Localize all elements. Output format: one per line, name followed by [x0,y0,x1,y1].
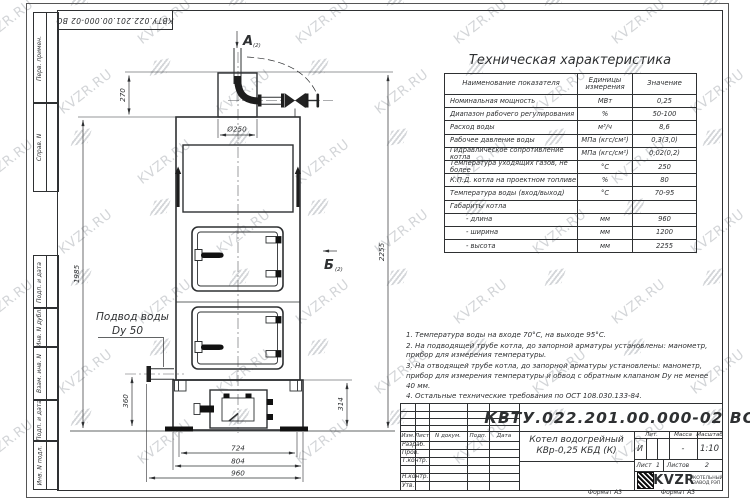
lower-fuel-door [192,307,283,369]
tech-row-value: 8,6 [633,121,697,134]
dim-360: 360 [121,394,130,408]
format-label: Формат А3 [575,489,635,496]
tech-col-header: Наименование показателя [445,74,578,95]
sheets-label: Листов [664,459,692,471]
centerlines [125,52,333,433]
tech-row-value: 0,25 [633,95,697,108]
leader-line [98,338,164,368]
dim-2255: 2255 [377,242,386,261]
note-line: 3. На отводящей трубе котла, до запорной… [406,361,714,390]
tb-line [401,465,519,466]
foot [165,427,193,432]
valve-handwheel [317,94,320,108]
margin-box-ref-number: Справ. N [33,102,59,192]
tech-row-unit [578,201,633,214]
dim-250: Ø250 [226,125,247,134]
tech-col-header: Единицы измерения [578,74,633,95]
tech-row-unit: м³/ч [578,121,633,134]
company-logo-icon [638,473,653,488]
sheet-label: Лист [635,459,653,471]
tech-col-header: Значение [633,74,697,95]
scale-header: Масштаб [697,431,722,438]
col-podp: Подп. [467,431,489,441]
dim-270: 270 [118,88,127,102]
tech-row-value: 250 [633,161,697,174]
product-name-line2: КВр-0,25 КБД (К) [536,446,616,457]
tech-row-name: - длина [445,214,578,227]
tech-row-value: 80 [633,174,697,187]
margin-box-inv-orig: Инв. N подл. [33,440,59,490]
tech-row-value: 0,02(0,2) [633,148,697,161]
tech-row-unit: МПа (кгс/см²) [578,135,633,148]
tech-row-value: 0,3(3,0) [633,135,697,148]
margin-box-first-use: Перв. примен. [33,12,59,104]
row-nkontr: Н.контр. [402,473,430,481]
view-b-label: Б [324,258,334,273]
flange [258,95,262,107]
door-handle-bracket [195,342,202,353]
document-number: КВТУ.022.201.00.000-02 ВО [519,404,722,431]
margin-box-label: Взам. инв. N [33,347,47,400]
tech-row-unit: °С [578,161,633,174]
outlet-pipe-valve [238,76,320,117]
lit-header: Лит. [634,431,669,438]
sheet-value: 1 [653,459,663,471]
ash-door-handle-bracket [194,404,200,415]
view-b-sheet-ref: (2) [335,267,343,273]
ash-door-handle [200,406,214,413]
note-line: 4. Остальные технические требования по О… [406,391,714,401]
tech-row-name: Расход воды [445,121,578,134]
sheets-value: 2 [701,459,713,471]
view-a-sheet-ref: (2) [253,43,261,49]
margin-box-repl-inv: Взам. инв. N [33,346,59,401]
boiler-body [70,48,395,431]
row-razrab: Разраб. [402,441,430,449]
col-ndoc: N докум. [429,431,467,441]
flange [281,94,284,108]
product-name: Котел водогрейный КВр-0,25 КБД (К) [519,431,634,461]
tech-row-name: Температура воды (вход/выход) [445,187,578,200]
tech-row-unit: МВт [578,95,633,108]
tech-row-unit: мм [578,240,633,253]
tech-row-value: 1200 [633,227,697,240]
margin-box-label: Справ. N [33,103,47,191]
tech-row-unit: МПа (кгс/см²) [578,148,633,161]
dimension-labels: 270 Ø250 1985 2255 360 314 724 804 960 [72,88,386,478]
valve-body [295,93,306,108]
title-block: КВТУ.022.201.00.000-02 ВО Котел водогрей… [400,403,722,490]
tech-table-title: Техническая характеристика [444,53,696,68]
foot [280,427,308,432]
flange [306,94,309,108]
company-logo-text: KVZR [655,472,693,489]
ash-door [165,380,308,432]
extension-lines [78,72,393,482]
col-izm: Изм. [401,431,415,441]
ash-door-lever [229,414,238,422]
lit-value: И [634,438,646,459]
valve-body [285,93,296,108]
tech-row-name: Температура уходящих газов, не более [445,161,578,174]
drawing-sheet: KVZR.RUKVZR.RUKVZR.RUKVZR.RUKVZR.RUKVZR.… [0,0,750,500]
margin-box-inv-dupl: Инв. N дубл. [33,307,59,348]
col-data: Дата [489,431,519,441]
mass-header: Масса [669,431,697,438]
product-name-line1: Котел водогрейный [529,435,624,446]
tech-row-name: К.П.Д. котла на проектном топливе [445,174,578,187]
door-handle-bracket [195,250,202,261]
dim-1985: 1985 [72,264,81,283]
tech-row-unit: мм [578,214,633,227]
water-inlet-pipe [98,338,174,383]
dim-804: 804 [231,457,245,466]
note-line: 1. Температура воды на входе 70°С, на вы… [406,330,714,340]
dim-314: 314 [336,397,345,411]
margin-box-label: Инв. N дубл. [33,308,47,347]
view-a-label: А [242,34,253,49]
tech-row-name: Габариты котла [445,201,578,214]
row-tkontr: Т.контр. [402,457,430,465]
dim-960: 960 [231,469,245,478]
inlet-flange [147,366,152,382]
margin-box-label: Инв. N подл. [33,441,47,489]
tech-row-name: Диапазон рабочего регулирования [445,108,578,121]
water-inlet-label-1: Подвод воды [96,311,169,323]
corner-stamp: КВТУ.022.201.00.000-02 ВО [57,10,173,30]
dim-724: 724 [231,444,245,453]
tech-row-value: 2255 [633,240,697,253]
row-prov: Пров. [402,449,430,457]
tb-line [646,438,647,459]
tb-line [519,461,634,462]
tb-line [657,438,658,459]
tech-row-value: 50-100 [633,108,697,121]
tech-row-name: Номинальная мощность [445,95,578,108]
tech-row-value [633,201,697,214]
margin-box-sign-date-1: Подп. и дата [33,255,59,309]
tech-row-name: - ширина [445,227,578,240]
tb-line [467,404,468,490]
tech-row-value: 960 [633,214,697,227]
tech-row-name: - высота [445,240,578,253]
tech-row-unit: °С [578,187,633,200]
format-label: Формат А3 [648,489,708,496]
technical-notes: 1. Температура воды на входе 70°С, на вы… [406,330,714,402]
company-name-line2: ЗАВОД РЭП [693,481,720,486]
margin-box-sign-date-2: Подп. и дата [33,399,59,442]
tech-row-value: 70-95 [633,187,697,200]
row-utv: Утв. [402,481,430,490]
tech-row-unit: % [578,174,633,187]
corner-stamp-number: КВТУ.022.201.00.000-02 ВО [56,16,173,25]
scale-value: 1:10 [697,438,722,459]
margin-box-label: Перв. примен. [33,13,47,103]
water-inlet-label-2: Dy 50 [112,325,143,337]
col-list: Лист [415,431,429,441]
margin-box-label: Подп. и дата [33,256,47,308]
note-line: 2. На подводящей трубе котла, до запорно… [406,341,714,360]
tech-row-unit: % [578,108,633,121]
margin-box-label: Подп. и дата [33,400,47,441]
mass-value: - [669,438,697,459]
tech-row-unit: мм [578,227,633,240]
tech-table: Наименование показателя Единицы измерени… [444,73,697,253]
company-name: КОТЕЛЬНЫЙ ЗАВОД РЭП [693,473,722,489]
upper-fuel-door [192,227,283,291]
